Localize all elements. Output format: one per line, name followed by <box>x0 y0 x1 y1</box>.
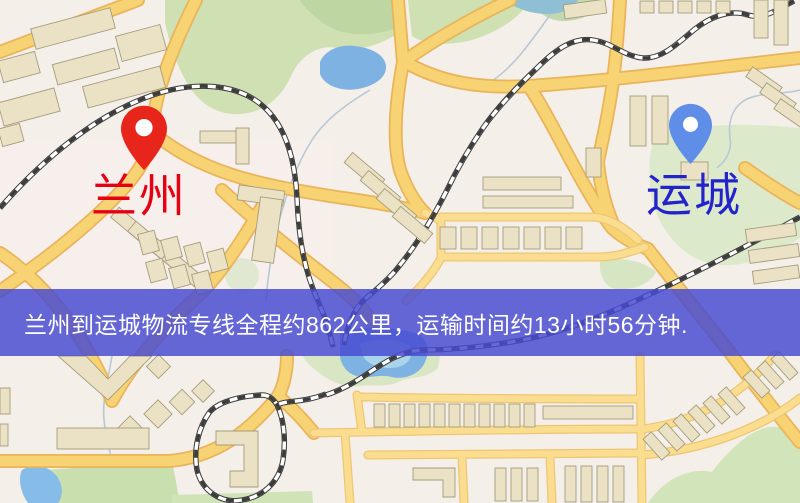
destination-pin-shape <box>669 104 712 164</box>
destination-city-label: 运城 <box>646 172 742 218</box>
origin-pin-icon[interactable] <box>121 103 167 173</box>
map-background <box>0 0 800 503</box>
destination-pin-dot <box>683 117 698 132</box>
route-info-text: 兰州到运城物流专线全程约862公里，运输时间约13小时56分钟. <box>24 306 688 340</box>
map-canvas[interactable]: 兰州 运城 兰州到运城物流专线全程约862公里，运输时间约13小时56分钟. <box>0 0 800 503</box>
origin-city-label: 兰州 <box>91 173 187 219</box>
destination-pin-icon[interactable] <box>669 101 712 167</box>
origin-pin-shape <box>121 106 167 170</box>
origin-pin-dot <box>135 119 152 136</box>
route-info-banner: 兰州到运城物流专线全程约862公里，运输时间约13小时56分钟. <box>0 289 800 356</box>
